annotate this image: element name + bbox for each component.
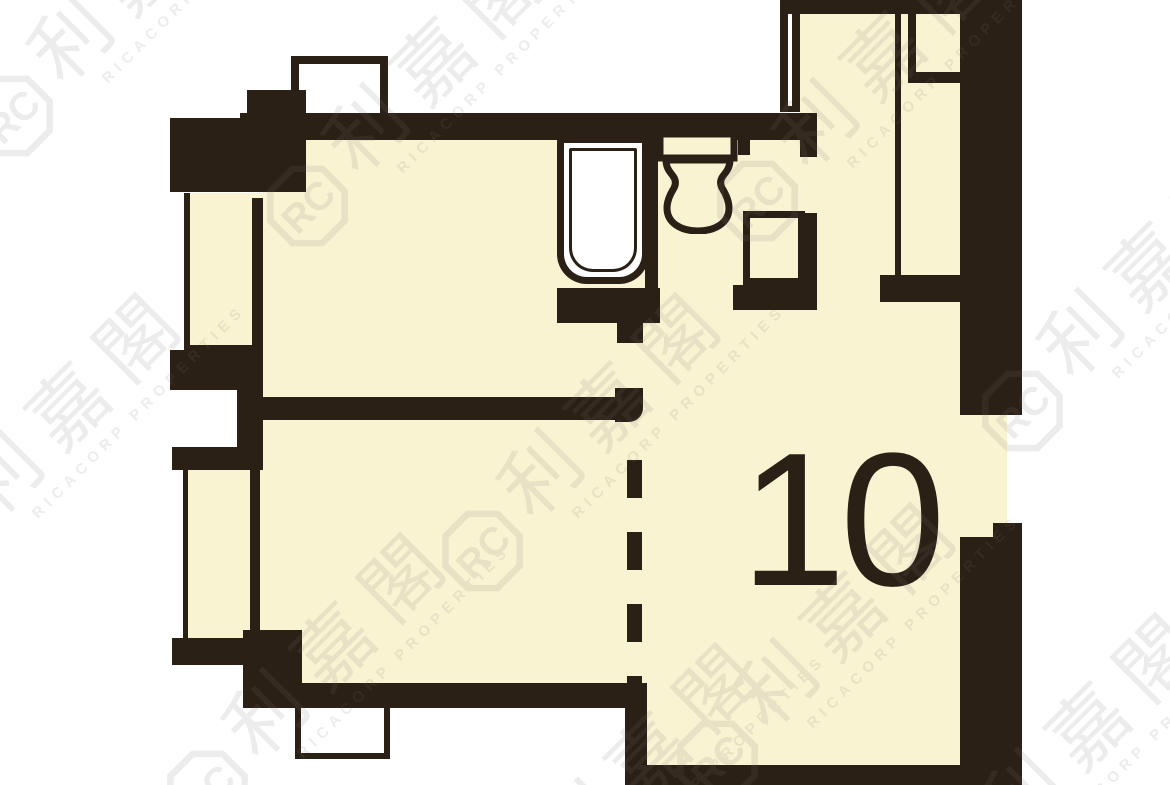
wall-segment xyxy=(617,323,643,343)
wall-living-bottom xyxy=(625,765,1022,785)
wall-room-divider xyxy=(256,397,620,420)
bathtub-inner-line xyxy=(569,148,637,272)
wall-kitchen-divider xyxy=(895,14,901,277)
floor-bedroom-bottom xyxy=(256,400,647,690)
bay-window-bottom xyxy=(295,708,390,759)
window-line-kitchen xyxy=(788,13,792,106)
wall-kitchen-bottom xyxy=(880,275,967,302)
wall-bathroom-bottom-left xyxy=(557,288,660,323)
rc-logo-icon: RC xyxy=(0,491,2,610)
dashed-door-opening xyxy=(627,460,642,685)
wall-segment xyxy=(800,113,817,157)
rc-logo-icon: RC xyxy=(148,731,267,785)
wall-bedroom-bottom xyxy=(243,683,647,708)
wall-niche xyxy=(908,72,960,83)
floor-plan-image: 10 RC 利嘉閣RICACORP PROPERTIES RC 利嘉閣RICAC… xyxy=(0,0,1170,785)
wash-basin xyxy=(743,211,805,285)
floor-kitchen xyxy=(800,8,962,300)
wall-right-lower xyxy=(960,537,1022,767)
floor-window-bay-lower-left xyxy=(183,465,260,645)
wall-door-jamb xyxy=(615,388,643,422)
wall-segment xyxy=(250,470,260,640)
window-line-lower-left xyxy=(183,470,188,645)
watermark-chinese: 利嘉閣 xyxy=(17,0,305,96)
toilet xyxy=(656,130,740,234)
window-line-upper-left xyxy=(184,193,190,350)
unit-number-label: 10 xyxy=(735,425,945,615)
wall-right-upper xyxy=(960,0,1022,415)
bathtub xyxy=(557,136,649,284)
rc-logo-text: RC xyxy=(0,81,49,152)
rc-logo-icon: RC xyxy=(0,56,72,175)
wall-bathroom-bottom-right xyxy=(733,285,817,310)
wall-segment xyxy=(993,523,1022,537)
wall-segment xyxy=(252,198,263,350)
wall-segment xyxy=(172,447,260,470)
svg-text:RC: RC xyxy=(173,756,244,785)
wall-segment xyxy=(170,350,237,390)
